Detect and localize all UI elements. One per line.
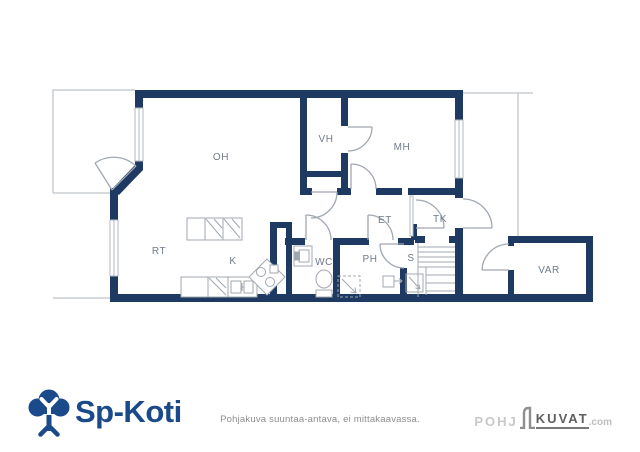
footer: Sp-Koti Pohjakuva suuntaa-antava, ei mit…	[0, 390, 640, 452]
shower	[338, 276, 360, 297]
var-door	[482, 244, 509, 270]
window	[110, 220, 118, 276]
exterior-door-right	[463, 199, 492, 228]
room-label-var: VAR	[538, 265, 560, 276]
stair-step-icon	[519, 406, 535, 429]
sp-koti-logo: Sp-Koti	[26, 386, 182, 438]
sauna-door	[380, 244, 404, 268]
room-label-k: K	[229, 256, 236, 267]
yard-outline	[463, 93, 533, 236]
wash-basin	[294, 246, 312, 266]
room-label-rt: RT	[152, 246, 166, 257]
floor-plan-canvas: OH VH MH ET TK RT K WC PH S VAR	[0, 0, 640, 452]
wc-door	[306, 215, 331, 240]
room-label-tk: TK	[433, 214, 447, 225]
sp-koti-tree-icon	[26, 386, 72, 438]
room-label-vh: VH	[318, 134, 333, 145]
mh-door	[351, 164, 376, 189]
pohjakuvat-watermark: POHJ KUVAT .com	[474, 406, 612, 429]
tk-partition	[410, 196, 413, 236]
window	[455, 120, 463, 178]
room-label-s: S	[407, 253, 414, 264]
tall-cabinets	[187, 218, 242, 240]
outer-walls	[110, 90, 593, 302]
room-label-wc: WC	[315, 257, 333, 268]
staircase	[418, 243, 455, 297]
vh-mh-door	[348, 127, 372, 151]
terrace-outline	[53, 90, 135, 298]
vh-door	[311, 192, 337, 218]
room-label-oh: OH	[213, 152, 229, 163]
room-label-mh: MH	[394, 142, 411, 153]
sauna-stove	[406, 274, 423, 292]
wc-fixtures	[294, 246, 332, 297]
room-label-et: ET	[378, 215, 392, 226]
floor-plan-image: OH VH MH ET TK RT K WC PH S VAR	[0, 0, 640, 452]
toilet	[316, 270, 332, 297]
watermark-kuvat: KUVAT	[536, 411, 589, 429]
washing-machine	[383, 276, 402, 287]
window	[135, 108, 143, 161]
watermark-com: .com	[589, 417, 612, 429]
room-labels: OH VH MH ET TK RT K WC PH S VAR	[152, 134, 560, 276]
room-label-ph: PH	[362, 254, 377, 265]
bathroom-fixtures	[338, 274, 423, 297]
watermark-pohj: POHJ	[474, 414, 517, 429]
